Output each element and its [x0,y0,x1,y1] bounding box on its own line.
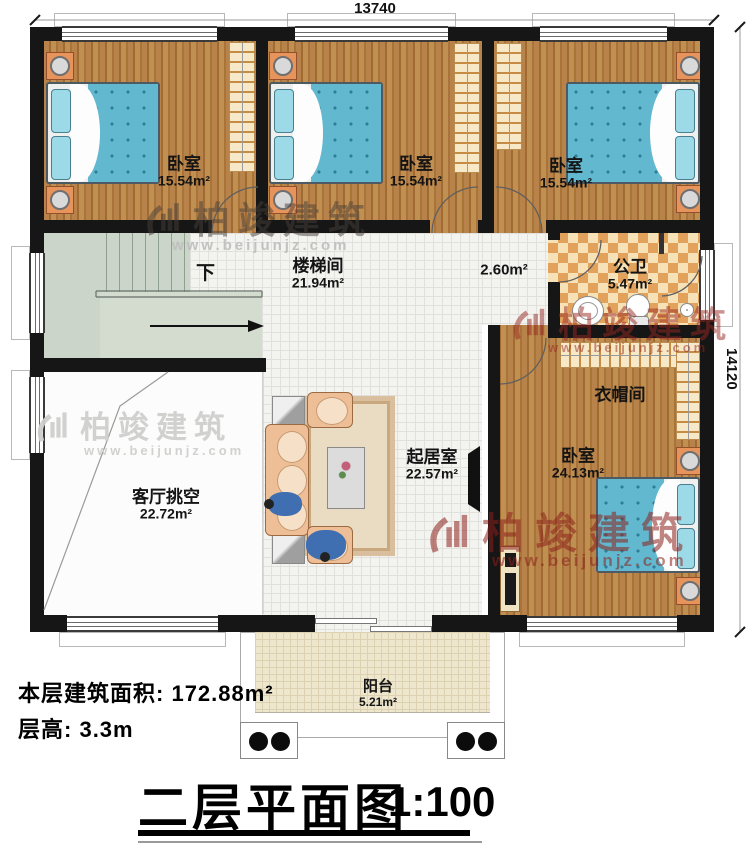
stair-direction-label: 下 [196,258,215,285]
room-area: 21.94m² [292,276,344,292]
window-sill [54,13,225,27]
window [295,26,448,42]
column-icon [271,732,290,751]
wall [256,27,268,233]
bed-bedroom4 [596,477,700,573]
armchair [307,392,353,428]
wardrobe-bedroom2 [454,43,480,173]
nightstand [269,186,297,214]
coffee-table [327,447,365,509]
tv-icon [468,446,480,512]
floor-plan: 柏竣建筑 www.beijunjz.com 柏竣建筑 www.beijunjz.… [0,0,750,854]
wall [30,615,67,632]
room-label-balcony: 阳台 5.21m² [359,679,397,709]
window [62,26,217,42]
person-figure [306,530,346,560]
window-sill [532,13,675,27]
room-label-void: 客厅挑空 22.72m² [132,488,200,523]
nightstand [46,52,74,80]
dimension-tick [30,15,40,25]
room-label-bedroom4: 卧室 24.13m² [552,447,604,482]
window [699,250,715,320]
room-label-stairwell: 楼梯间 21.94m² [292,257,344,292]
balcony-column-block-left [240,722,298,759]
room-area: 15.54m² [390,174,442,190]
room-name: 卧室 [552,447,604,466]
room-name: 卧室 [540,157,592,176]
wall [30,358,266,372]
sink-icon [572,296,604,326]
column-icon [478,732,497,751]
window-sill [59,632,226,647]
window [540,26,667,42]
dimension-tick [735,22,745,32]
dimension-tick [709,15,719,25]
wall [30,220,212,233]
bed-pillow [677,484,695,525]
window-sill [11,370,30,460]
room-label-corridor: 2.60m² [480,263,528,280]
room-label-bedroom2: 卧室 15.54m² [390,155,442,190]
room-name: 公卫 [608,258,652,277]
person-figure [268,492,302,516]
wall [548,282,560,325]
floor-area-value: 172.88m² [171,681,273,706]
window [67,616,218,632]
room-name: 阳台 [359,679,397,696]
wall [432,615,527,632]
window-sill [714,243,733,327]
column-icon [456,732,475,751]
wall [218,615,315,632]
room-label-bedroom1: 卧室 15.54m² [158,155,210,190]
person-head [264,499,274,509]
bed-pillow [274,89,294,133]
room-area: 22.72m² [132,507,200,523]
drawing-scale: 1:100 [388,778,495,826]
wall [546,220,714,233]
nightstand [269,52,297,80]
room-area: 24.13m² [552,466,604,482]
wall [677,615,714,632]
room-area: 15.54m² [158,174,210,190]
title-underline-thin [138,841,482,843]
room-name: 衣帽间 [595,385,646,404]
bed-pillow [677,528,695,569]
sliding-door [370,626,432,632]
floor-area-info: 本层建筑面积: 172.88m² [18,676,274,708]
speaker-icon [505,573,516,605]
floor-drain-icon [680,303,694,317]
room-area: 22.57m² [406,467,458,483]
window [29,377,45,453]
sofa-cushion [316,397,348,425]
stair-flight-lower [100,292,262,358]
window [29,253,45,333]
wardrobe-bedroom3 [496,43,522,150]
room-label-bedroom3: 卧室 15.54m² [540,157,592,192]
room-label-cloakroom: 衣帽间 [595,385,646,404]
toilet-icon [626,294,650,318]
tv-icon [505,553,516,567]
sofa-three-seat [265,424,309,536]
nightstand [46,186,74,214]
room-area: 15.54m² [540,176,592,192]
wardrobe-bedroom1 [229,42,255,172]
stair-flight-upper [106,232,190,292]
room-area: 5.21m² [359,696,397,709]
title-underline [138,830,470,836]
wall [488,325,500,615]
sliding-door [315,618,377,624]
bed-pillow [675,89,695,133]
window [527,616,677,632]
wall [548,325,714,338]
floor-height-value: 3.3m [79,717,133,742]
bed-pillow [274,136,294,180]
bed-bedroom1 [46,82,160,184]
bed-pillow [51,89,71,133]
dimension-top: 13740 [340,0,410,17]
tv-cabinet [500,546,520,612]
cloakroom-closet-right [676,342,700,440]
floor-height-label: 层高: [18,717,72,742]
room-name: 卧室 [158,155,210,174]
room-area: 5.47m² [608,277,652,293]
wall [548,233,560,240]
room-name: 楼梯间 [292,257,344,276]
window-sill [519,632,685,647]
wall [268,220,430,233]
dimension-tick [735,627,745,637]
column-icon [249,732,268,751]
window-sill [11,246,30,340]
wall [482,27,494,233]
wall [478,220,494,233]
person-head [320,552,330,562]
floor-height-info: 层高: 3.3m [18,712,134,744]
wall [659,233,664,254]
dimension-right: 14120 [723,348,740,432]
cloakroom-closet-top [560,342,680,368]
side-table [272,532,305,564]
sofa-cushion [277,431,307,463]
room-label-bathroom: 公卫 5.47m² [608,258,652,293]
room-area: 2.60m² [480,263,528,280]
balcony-column-block-right [447,722,505,759]
room-name: 卧室 [390,155,442,174]
floor-area-label: 本层建筑面积: [18,681,164,706]
bed-bedroom2 [269,82,383,184]
bed-pillow [675,136,695,180]
bed-pillow [51,136,71,180]
room-label-living: 起居室 22.57m² [406,448,458,483]
room-name: 起居室 [406,448,458,467]
room-name: 客厅挑空 [132,488,200,507]
